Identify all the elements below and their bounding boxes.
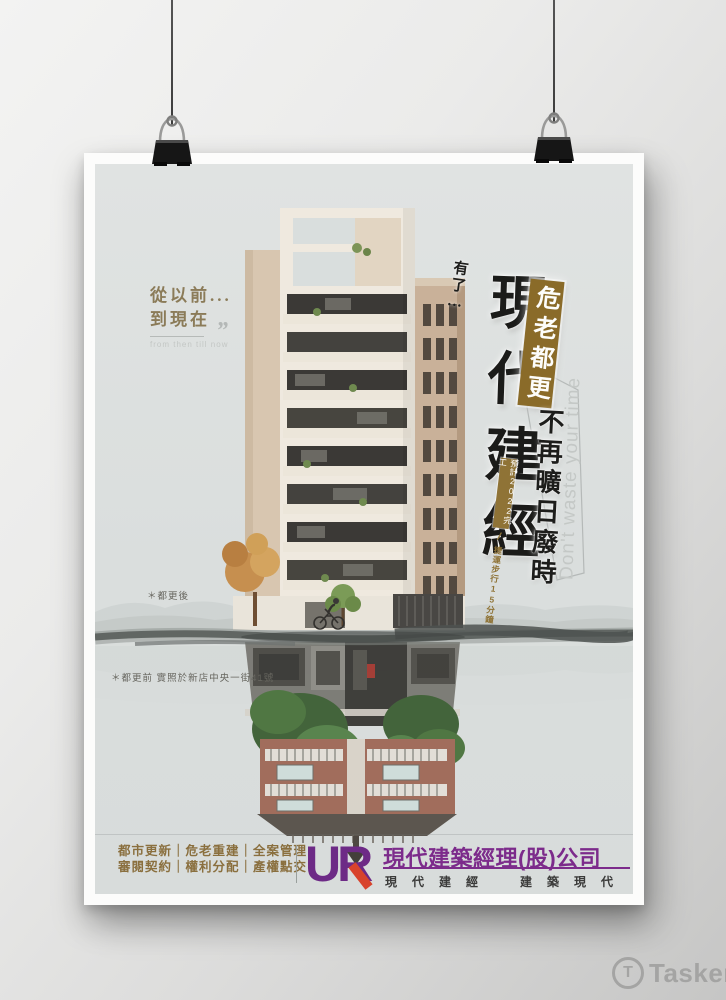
intro-divider [150,336,204,337]
services-text-block: 都市更新｜危老重建｜全案管理 審閱契約｜權利分配｜產權點交 [118,843,307,875]
footer-divider-line [95,834,633,835]
watermark-brand: Tasker [649,958,726,989]
footer-vertical-divider [296,845,297,883]
watermark: T Tasker [612,957,726,989]
intro-text-block: 從以前... 到現在 ” [150,284,232,332]
services-line2: 審閱契約｜權利分配｜產權點交 [118,859,307,875]
label-before-renewal: ＊都更前 實照於新店中央一街41號 [111,670,274,684]
intro-caption-en: from then till now [150,340,228,349]
poster-sheet: 從以前... 到現在 ” from then till now 有了… 現代建經… [84,153,644,905]
hanging-string-right [553,0,555,122]
binder-clip-left [147,110,197,168]
company-slogan: 現代建經 建築現代 [385,873,633,890]
poster-print-area: 從以前... 到現在 ” from then till now 有了… 現代建經… [95,164,633,894]
ur-logo: UR [305,838,375,890]
binder-clip-right [529,107,579,165]
waterline-ink-stroke [95,630,633,644]
note-slash: / [496,531,503,543]
old-building-reflection-illustration [245,642,465,865]
wall-background: 從以前... 到現在 ” from then till now 有了… 現代建經… [0,0,726,1000]
tasker-circle-t-icon: T [612,957,644,989]
hanging-string-left [171,0,173,126]
company-underline [383,867,630,869]
intro-line1: 從以前... [150,284,232,308]
services-line1: 都市更新｜危老重建｜全案管理 [118,843,307,859]
modern-building-illustration [222,208,465,632]
completion-note-box: 預計2022完工 [493,458,517,529]
label-after-renewal: ＊都更後 [147,588,189,602]
